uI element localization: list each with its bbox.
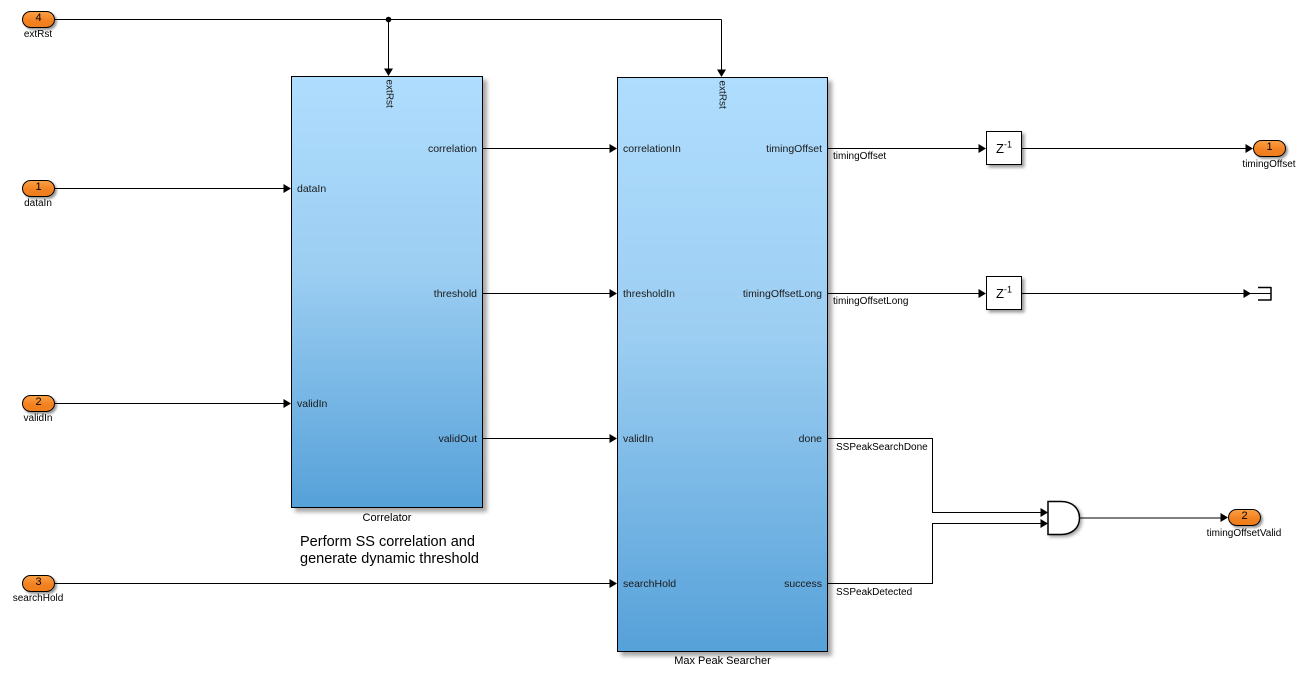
arrowhead xyxy=(284,399,292,408)
correlator-port-correlation: correlation xyxy=(428,143,477,155)
arrowhead xyxy=(610,289,618,298)
inport-datain[interactable]: 1 xyxy=(22,180,55,197)
annotation-line-1: Perform SS correlation and xyxy=(300,534,479,551)
and-gate-block[interactable] xyxy=(1048,502,1080,535)
signal-label-timingoffset: timingOffset xyxy=(833,151,886,162)
signal-label-timingoffsetlong: timingOffsetLong xyxy=(833,296,908,307)
inport-validin-number: 2 xyxy=(35,396,41,408)
outport-timingoffsetvalid-number: 2 xyxy=(1241,510,1247,522)
delay2-label: Z-1 xyxy=(996,286,1012,301)
mps-port-searchhold: searchHold xyxy=(623,578,676,590)
arrowhead xyxy=(1221,513,1229,522)
correlator-port-validout: validOut xyxy=(438,433,477,445)
outport-timingoffset-label: timingOffset xyxy=(1242,159,1295,170)
mps-port-success: success xyxy=(784,578,822,590)
correlator-port-threshold: threshold xyxy=(434,288,477,300)
outport-timingoffsetvalid[interactable]: 2 xyxy=(1228,509,1261,526)
mps-port-correlationin: correlationIn xyxy=(623,143,681,155)
arrowhead xyxy=(284,184,292,193)
inport-datain-number: 1 xyxy=(35,181,41,193)
arrowhead xyxy=(979,289,987,298)
correlator-block[interactable]: extRst dataIn validIn correlation thresh… xyxy=(291,76,483,508)
mps-port-thresholdin: thresholdIn xyxy=(623,288,675,300)
max-peak-searcher-block[interactable]: extRst correlationIn thresholdIn validIn… xyxy=(617,77,828,652)
signal-label-sspeaksearchdone: SSPeakSearchDone xyxy=(836,442,928,453)
arrowhead xyxy=(1041,519,1049,528)
outport-timingoffsetvalid-label: timingOffsetValid xyxy=(1207,528,1282,539)
inport-validin[interactable]: 2 xyxy=(22,395,55,412)
mps-port-done: done xyxy=(799,433,822,445)
mps-port-timingoffsetlong: timingOffsetLong xyxy=(743,288,822,300)
arrowhead xyxy=(384,69,393,77)
delay-block-2[interactable]: Z-1 xyxy=(986,276,1022,310)
simulink-diagram-canvas: 4 extRst 1 dataIn 2 validIn 3 searchHold… xyxy=(0,0,1305,680)
arrowhead xyxy=(717,70,726,78)
correlator-block-name: Correlator xyxy=(291,512,483,524)
correlator-port-datain: dataIn xyxy=(297,183,326,195)
arrowhead xyxy=(1244,289,1252,298)
arrowhead xyxy=(610,144,618,153)
mps-top-port-label: extRst xyxy=(717,81,728,115)
annotation-line-2: generate dynamic threshold xyxy=(300,551,479,568)
arrowhead xyxy=(979,144,987,153)
wire-extrst[interactable] xyxy=(55,20,722,71)
arrowhead xyxy=(1041,508,1049,517)
outport-timingoffset[interactable]: 1 xyxy=(1253,140,1286,157)
wire-junction-dot xyxy=(386,17,392,23)
inport-extrst-label: extRst xyxy=(24,29,52,40)
arrowhead xyxy=(610,579,618,588)
inport-searchhold-label: searchHold xyxy=(13,593,64,604)
inport-validin-label: validIn xyxy=(24,413,53,424)
mps-port-timingoffset: timingOffset xyxy=(766,143,822,155)
arrowhead xyxy=(1246,144,1254,153)
delay-block-1[interactable]: Z-1 xyxy=(986,131,1022,165)
inport-datain-label: dataIn xyxy=(24,198,52,209)
correlator-port-validin: validIn xyxy=(297,398,327,410)
mps-port-validin: validIn xyxy=(623,433,653,445)
inport-extrst[interactable]: 4 xyxy=(22,11,55,28)
correlator-top-port-label: extRst xyxy=(384,80,395,114)
annotation-text[interactable]: Perform SS correlation and generate dyna… xyxy=(300,534,479,567)
signal-label-sspeakdetected: SSPeakDetected xyxy=(836,587,912,598)
wire-success[interactable] xyxy=(828,524,1042,584)
inport-searchhold-number: 3 xyxy=(35,576,41,588)
delay1-label: Z-1 xyxy=(996,141,1012,156)
max-peak-searcher-block-name: Max Peak Searcher xyxy=(617,655,828,667)
arrowhead xyxy=(610,434,618,443)
inport-extrst-number: 4 xyxy=(35,12,41,24)
inport-searchhold[interactable]: 3 xyxy=(22,575,55,592)
outport-timingoffset-number: 1 xyxy=(1266,141,1272,153)
